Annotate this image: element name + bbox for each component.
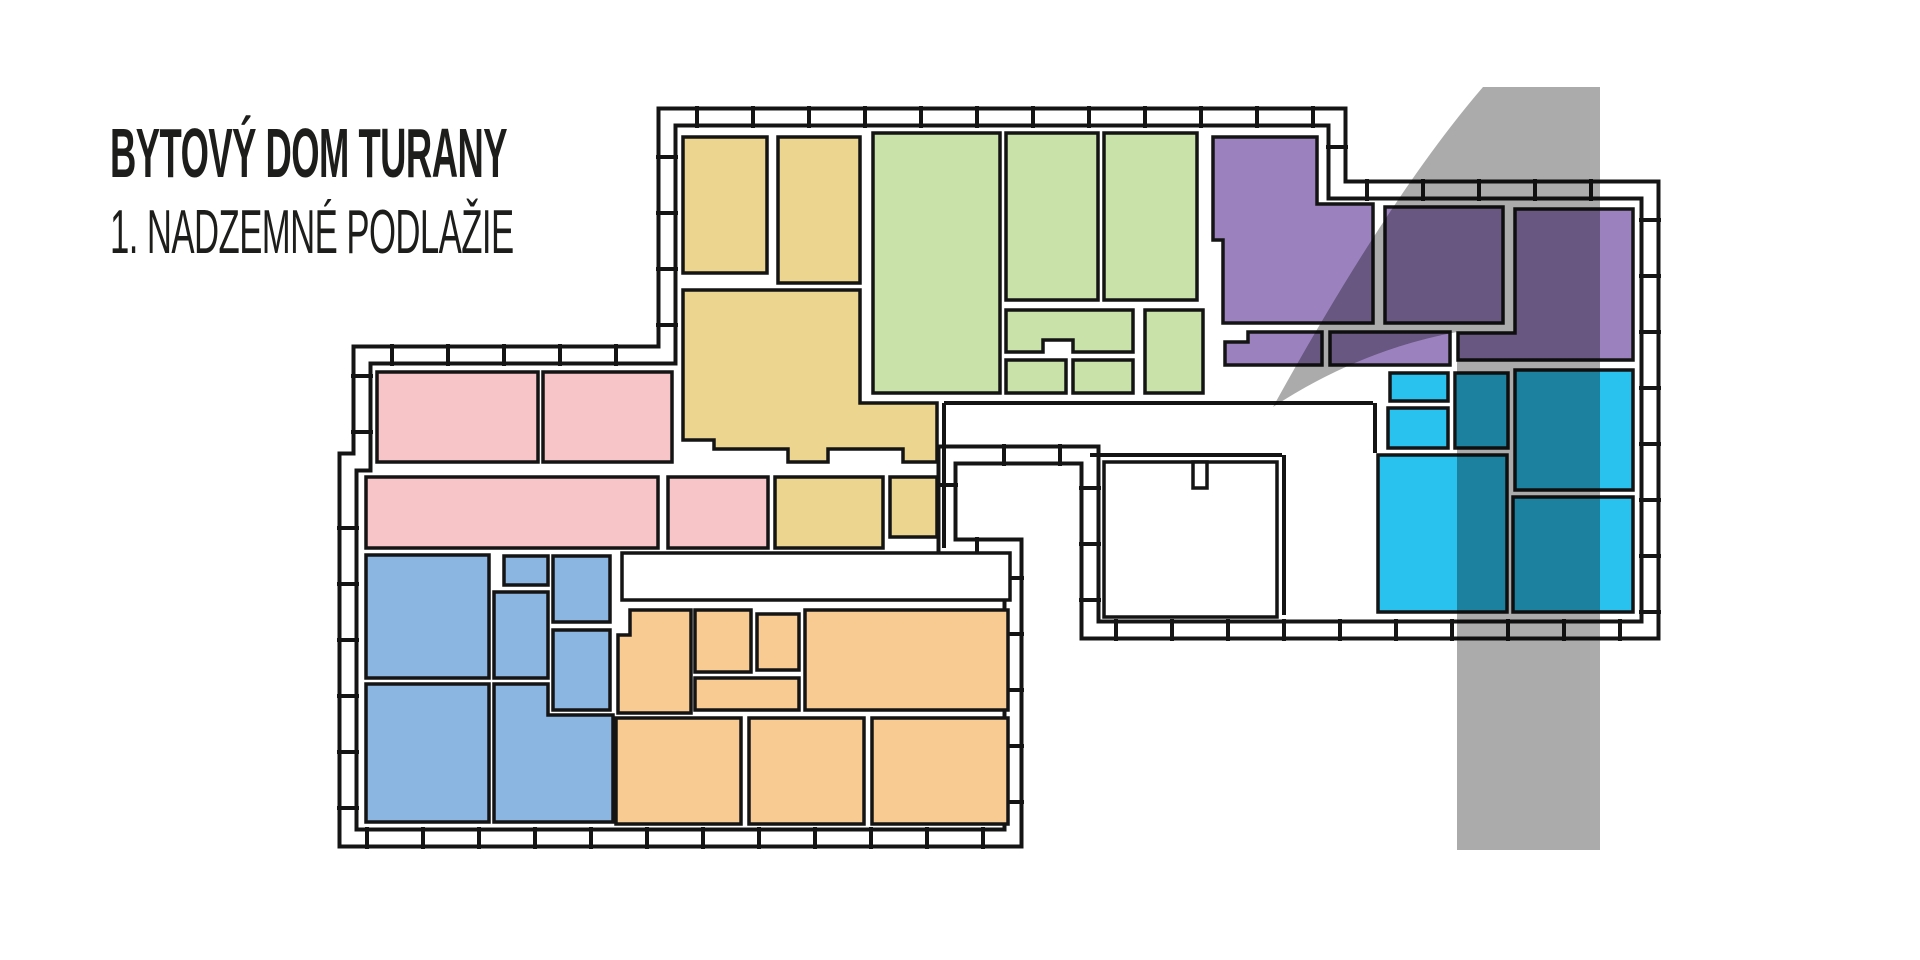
unit-green-room-2[interactable] bbox=[1006, 133, 1098, 300]
unit-blue[interactable] bbox=[366, 555, 613, 822]
unit-orange-room-6[interactable] bbox=[616, 718, 741, 824]
unit-blue-room-1[interactable] bbox=[366, 555, 489, 678]
page-title: BYTOVÝ DOM TURANY bbox=[110, 118, 507, 188]
unit-blue-room-5[interactable] bbox=[553, 630, 610, 710]
unit-blue-room-6[interactable] bbox=[366, 684, 489, 822]
unit-green-room-5[interactable] bbox=[1006, 360, 1066, 393]
unit-cyan-room-1[interactable] bbox=[1390, 373, 1448, 401]
unit-orange-room-5[interactable] bbox=[695, 678, 799, 710]
unit-orange-room-7[interactable] bbox=[749, 718, 864, 824]
unit-green[interactable] bbox=[873, 133, 1203, 393]
unit-orange-room-1[interactable] bbox=[618, 610, 691, 713]
page-subtitle: 1. NADZEMNÉ PODLAŽIE bbox=[110, 202, 538, 264]
unit-pink-room-1[interactable] bbox=[377, 372, 538, 462]
unit-cyan-room-2[interactable] bbox=[1388, 408, 1448, 448]
corridor-room bbox=[622, 553, 1010, 600]
unit-blue-room-3[interactable] bbox=[494, 592, 548, 678]
unit-green-room-3[interactable] bbox=[1104, 133, 1197, 300]
unit-orange-room-2[interactable] bbox=[695, 610, 751, 672]
staircase-room bbox=[1104, 462, 1277, 617]
unit-blue-room-2[interactable] bbox=[504, 556, 548, 585]
title-block: BYTOVÝ DOM TURANY 1. NADZEMNÉ PODLAŽIE bbox=[110, 118, 873, 264]
unit-pink-room-3[interactable] bbox=[366, 477, 658, 548]
unit-blue-room-4[interactable] bbox=[553, 556, 610, 622]
unit-green-room-4[interactable] bbox=[1006, 310, 1133, 352]
staircase-wall-stub bbox=[1193, 462, 1207, 488]
unit-orange-room-4[interactable] bbox=[805, 610, 1008, 710]
unit-pink-room-2[interactable] bbox=[543, 372, 672, 462]
unit-green-room-7[interactable] bbox=[1145, 310, 1203, 393]
unit-orange-room-8[interactable] bbox=[872, 718, 1008, 824]
unit-green-room-6[interactable] bbox=[1073, 360, 1133, 393]
unit-orange-room-3[interactable] bbox=[757, 614, 799, 670]
unit-yellow-room-4[interactable] bbox=[775, 477, 883, 548]
unit-yellow-room-5[interactable] bbox=[890, 477, 937, 537]
unit-green-room-1[interactable] bbox=[873, 133, 1000, 393]
floorplan-page: BYTOVÝ DOM TURANY 1. NADZEMNÉ PODLAŽIE bbox=[0, 0, 1920, 960]
unit-orange[interactable] bbox=[616, 610, 1008, 824]
unit-pink-room-4[interactable] bbox=[668, 477, 768, 548]
